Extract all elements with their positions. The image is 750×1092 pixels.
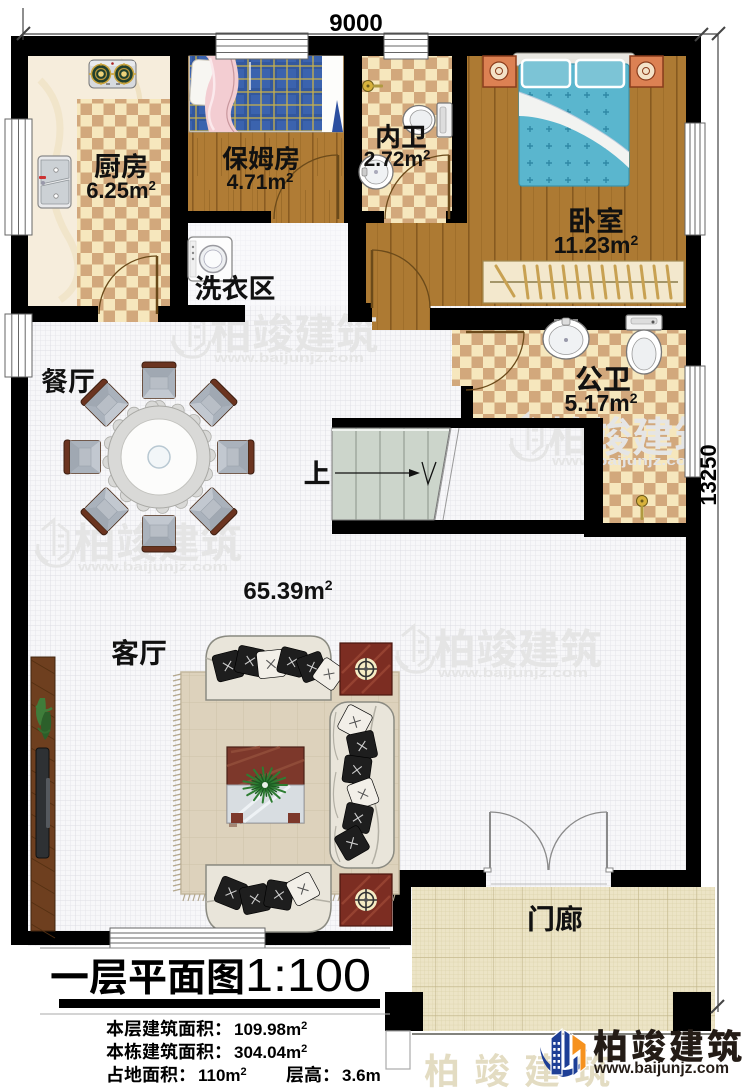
svg-text:www.baijunjz.com: www.baijunjz.com bbox=[593, 1060, 729, 1077]
svg-text:3.6m: 3.6m bbox=[342, 1066, 381, 1085]
svg-text:www.baijunjz.com: www.baijunjz.com bbox=[551, 453, 702, 468]
svg-text:65.39m2: 65.39m2 bbox=[243, 577, 332, 605]
svg-text:www.baijunjz.com: www.baijunjz.com bbox=[437, 665, 588, 680]
svg-text:13250: 13250 bbox=[696, 444, 721, 505]
svg-text:www.baijunjz.com: www.baijunjz.com bbox=[77, 559, 228, 574]
svg-text:4.71m2: 4.71m2 bbox=[227, 170, 294, 194]
svg-text:109.98m2: 109.98m2 bbox=[234, 1020, 307, 1039]
svg-text:6.25m2: 6.25m2 bbox=[86, 178, 156, 203]
svg-text:11.23m2: 11.23m2 bbox=[554, 232, 639, 258]
svg-text:9000: 9000 bbox=[329, 10, 382, 37]
svg-text:304.04m2: 304.04m2 bbox=[234, 1043, 307, 1062]
svg-text:2.72m2: 2.72m2 bbox=[364, 147, 431, 171]
svg-text:110m2: 110m2 bbox=[198, 1066, 247, 1085]
svg-text:5.17m2: 5.17m2 bbox=[564, 390, 637, 416]
svg-text:www.baijunjz.com: www.baijunjz.com bbox=[213, 350, 364, 365]
svg-text:1:100: 1:100 bbox=[245, 949, 371, 1001]
